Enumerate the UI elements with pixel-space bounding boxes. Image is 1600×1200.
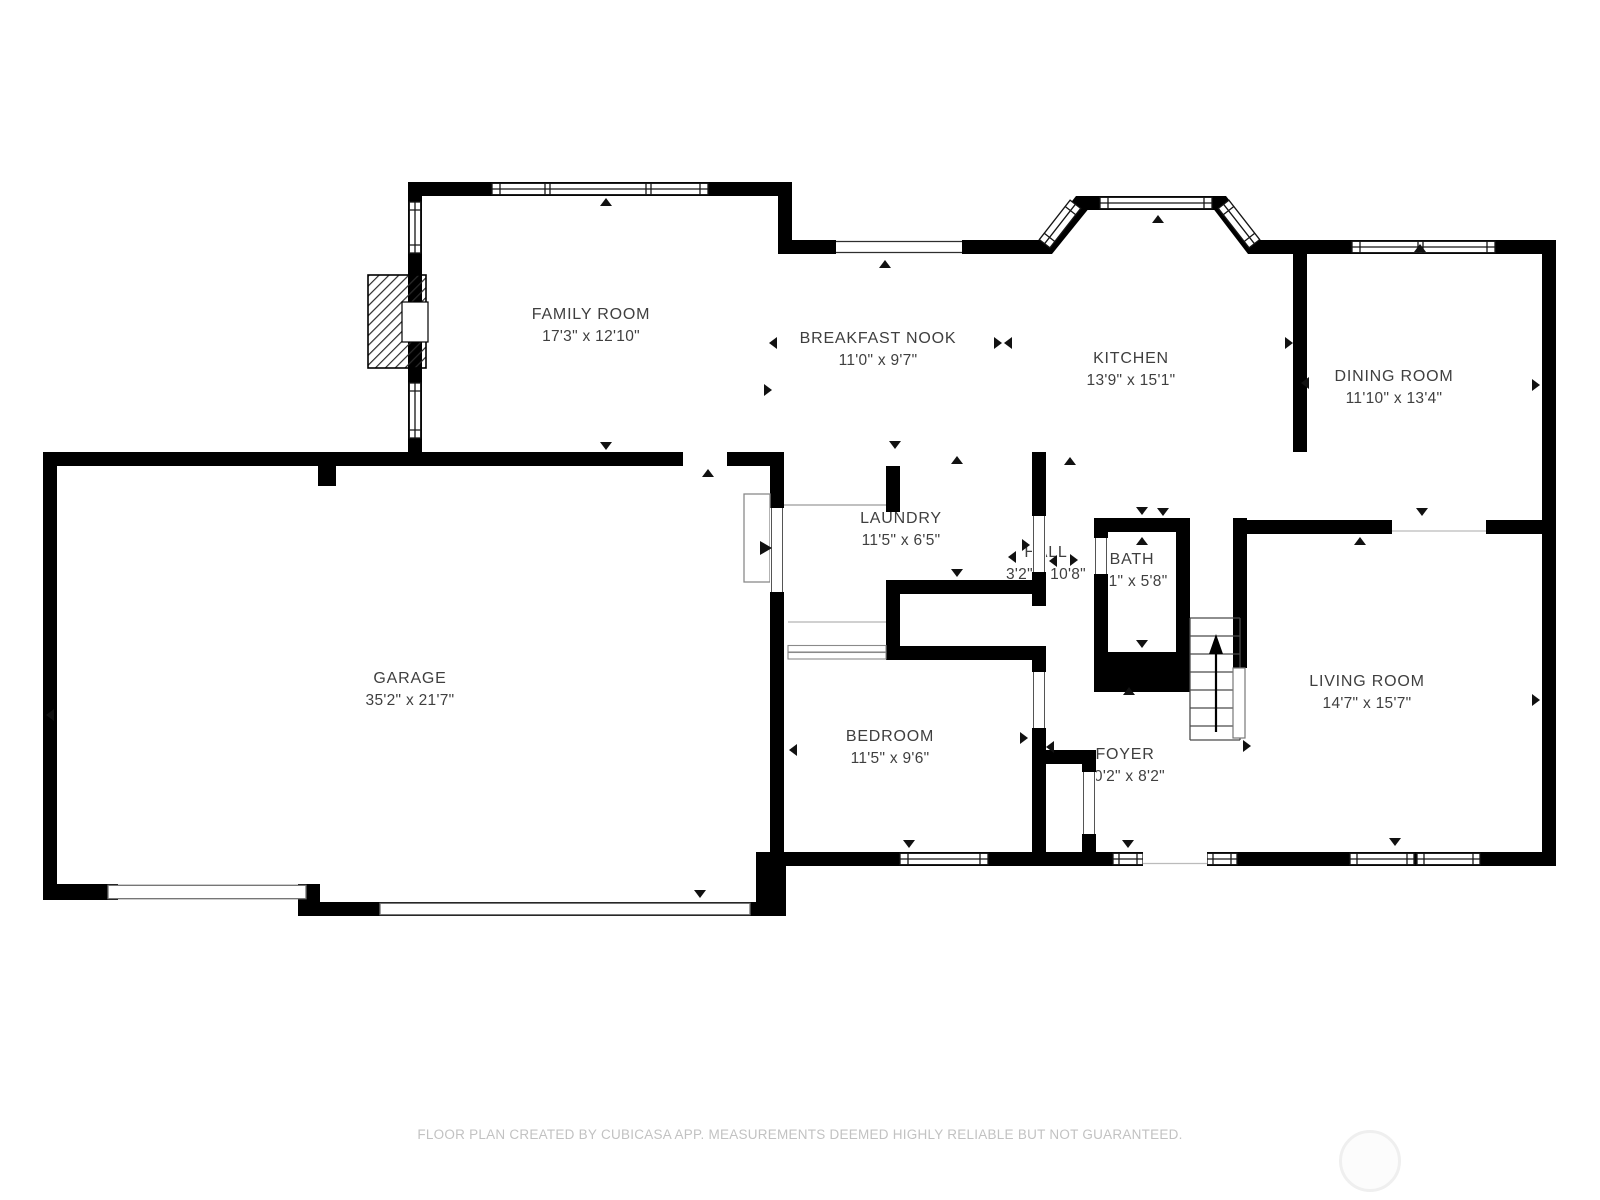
tick-down-icon xyxy=(951,569,963,577)
tick-down-icon xyxy=(903,840,915,848)
direction-ticks xyxy=(46,198,1540,898)
stairs-up-arrow-icon xyxy=(1209,634,1223,732)
tick-down-icon xyxy=(889,441,901,449)
door-bath xyxy=(1094,538,1108,574)
tick-right-icon xyxy=(1020,732,1028,744)
footer-disclaimer: FLOOR PLAN CREATED BY CUBICASA APP. MEAS… xyxy=(417,1127,1182,1142)
door-openings xyxy=(683,452,1486,866)
tick-up-icon xyxy=(1354,537,1366,545)
tick-up-icon xyxy=(1152,215,1164,223)
window-bedroom-bottom xyxy=(900,853,988,864)
window-family-room-left-upper xyxy=(409,202,420,253)
tick-right-icon xyxy=(764,384,772,396)
window-foyer-left xyxy=(1113,853,1143,864)
tick-up-icon xyxy=(600,198,612,206)
tick-down-icon xyxy=(1136,507,1148,515)
stair-rail xyxy=(1233,668,1245,738)
closet-fittings xyxy=(784,505,886,659)
tick-left-icon xyxy=(789,744,797,756)
window-foyer-right xyxy=(1207,853,1237,864)
tick-down-icon xyxy=(600,442,612,450)
door-foyer-closet xyxy=(1082,772,1096,834)
tick-right-icon xyxy=(1532,694,1540,706)
front-door-opening xyxy=(1143,852,1207,866)
tick-down-icon xyxy=(694,890,706,898)
door-bedroom xyxy=(1032,672,1046,728)
tick-right-icon xyxy=(1243,740,1251,752)
window-kitchen-bay-top xyxy=(1100,197,1212,208)
tick-down-icon xyxy=(1389,838,1401,846)
tick-up-icon xyxy=(951,456,963,464)
walls xyxy=(43,182,1556,916)
tick-down-icon xyxy=(1416,508,1428,516)
window-living-room-bottom-left xyxy=(1350,853,1414,864)
door-laundry-to-hall xyxy=(1032,516,1046,572)
tick-right-icon xyxy=(1532,379,1540,391)
tick-up-icon xyxy=(702,469,714,477)
tick-up-icon xyxy=(1136,537,1148,545)
staircase xyxy=(1190,618,1245,740)
opening-breakfast-nook-top xyxy=(836,240,962,254)
floor-plan-canvas: FAMILY ROOM 17'3" x 12'10" BREAKFAST NOO… xyxy=(0,0,1600,1200)
window-living-room-bottom-right xyxy=(1417,853,1480,864)
tick-left-icon xyxy=(1049,555,1057,567)
garage-door-left xyxy=(108,885,306,898)
window-family-room-left-lower xyxy=(409,383,420,438)
windows xyxy=(108,183,1495,914)
tick-left-icon xyxy=(769,337,777,349)
garage-door-right xyxy=(380,903,750,914)
window-family-room-top xyxy=(492,183,708,194)
tick-right-icon xyxy=(1022,539,1030,551)
tick-right-icon xyxy=(1285,337,1293,349)
tick-left-icon xyxy=(1004,337,1012,349)
tick-down-icon xyxy=(1157,508,1169,516)
tick-right-icon xyxy=(994,337,1002,349)
door-garage-to-laundry xyxy=(744,494,784,592)
fireplace xyxy=(368,275,428,368)
opening-family-room-to-garage xyxy=(683,452,727,466)
tick-up-icon xyxy=(1064,457,1076,465)
floor-plan-drawing xyxy=(0,0,1600,1200)
tick-down-icon xyxy=(1122,840,1134,848)
tick-left-icon xyxy=(1008,551,1016,563)
tick-right-icon xyxy=(1070,554,1078,566)
tick-up-icon xyxy=(879,260,891,268)
tick-down-icon xyxy=(1136,640,1148,648)
